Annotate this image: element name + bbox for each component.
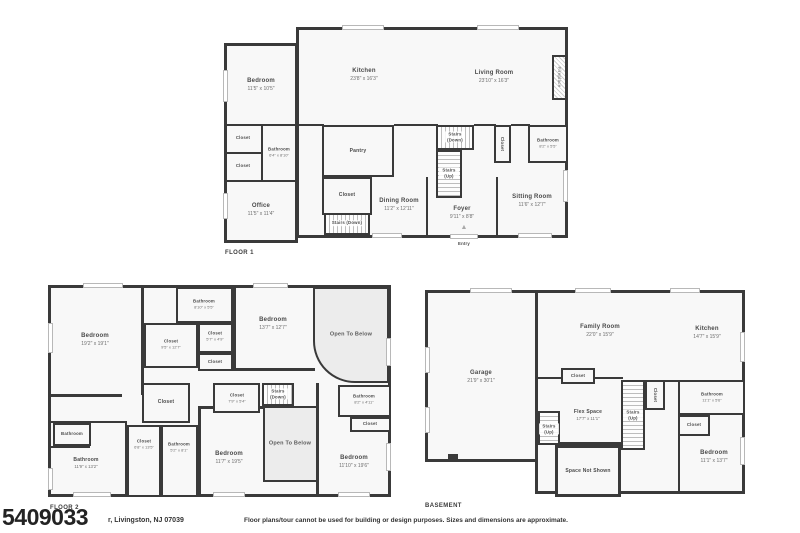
- room-label-entry: Entry: [458, 241, 470, 247]
- disclaimer-text: Floor plans/tour cannot be used for buil…: [244, 517, 568, 524]
- window: [425, 347, 430, 373]
- window: [386, 443, 391, 471]
- room-label-closet: Closet: [687, 422, 701, 428]
- room-name: Pantry: [350, 148, 367, 155]
- room-name: Stairs (Down): [269, 388, 287, 399]
- room-label-space-not-shown: Space Not Shown: [565, 468, 610, 475]
- wall: [474, 124, 496, 126]
- room-dims: 7'9" x 5'4": [228, 398, 246, 403]
- window: [223, 193, 228, 219]
- room-name: Living Room: [475, 70, 514, 78]
- room-name: Bedroom: [259, 317, 287, 325]
- room-label-closet: Closet: [339, 192, 355, 199]
- window: [563, 170, 568, 202]
- wall: [538, 377, 563, 379]
- wall: [198, 406, 201, 497]
- room-label-closet: Closet 9'5" x 12'7": [161, 339, 181, 350]
- room-name: Closet: [206, 331, 224, 337]
- room-label-bathroom: Bathroom: [61, 431, 83, 437]
- room-name: Closet: [499, 137, 505, 151]
- room-name: Stairs (Up): [440, 167, 458, 178]
- room-label-bathroom: Bathroom 6'4" x 8'10": [268, 147, 290, 158]
- room-name: Bathroom: [537, 138, 559, 144]
- room-name: Bedroom: [700, 450, 728, 458]
- room-dims: 17'7" x 11'1": [574, 415, 602, 421]
- room-name: Closet: [687, 422, 701, 428]
- room-dims: 8'10" x 5'5": [193, 304, 215, 309]
- entry-opening: [450, 234, 478, 239]
- window: [48, 468, 53, 490]
- room-label-closet: Closet: [236, 135, 250, 141]
- room-dims: 11'9" x 13'2": [73, 463, 98, 469]
- window: [386, 338, 391, 366]
- room-dims: 23'10" x 16'3": [475, 78, 514, 85]
- room-label-closet: Closet 5'7" x 4'9": [206, 331, 224, 342]
- room-label-kitchen: Kitchen 14'7" x 15'9": [693, 326, 720, 340]
- window: [477, 25, 519, 30]
- room-name: Closet: [339, 192, 355, 199]
- room-name: Kitchen: [693, 326, 720, 334]
- room-label-closet: Closet 7'9" x 5'4": [228, 393, 246, 404]
- wall: [50, 394, 122, 397]
- room-dims: 11'5" x 10'5": [247, 86, 275, 93]
- room-name: Office: [248, 203, 275, 211]
- room-label-garage: Garage 21'9" x 30'1": [467, 370, 494, 384]
- wall: [226, 180, 296, 182]
- room-name: Family Room: [580, 324, 620, 332]
- room-name: Open To Below: [269, 440, 311, 447]
- room-name: Foyer: [450, 206, 474, 214]
- room-dims: 14'7" x 15'9": [693, 334, 720, 341]
- room-label-stairs-up: Stairs (Up): [623, 409, 643, 420]
- window: [48, 323, 53, 353]
- room-name: Bathroom: [61, 431, 83, 437]
- room-label-fireplace: Fireplace: [556, 67, 562, 88]
- wall: [261, 126, 263, 180]
- room-name: Bedroom: [339, 455, 369, 463]
- room-label-kitchen: Kitchen 23'8" x 16'3": [350, 68, 377, 82]
- window: [213, 492, 245, 497]
- room-label-office: Office 11'5" x 11'4": [248, 203, 275, 217]
- room-name: Closet: [134, 439, 154, 445]
- room-dims: 13'7" x 12'7": [259, 325, 287, 332]
- room-dims: 11'7" x 19'5": [215, 459, 243, 466]
- room-name: Space Not Shown: [565, 468, 610, 475]
- room-label-foyer: Foyer 9'11" x 8'8": [450, 206, 474, 220]
- room-dims: 9'5" x 12'7": [161, 344, 181, 349]
- room-label-open-to-below: Open To Below: [330, 331, 372, 338]
- room-label-family-room: Family Room 22'0" x 15'9": [580, 324, 620, 338]
- room-name: Open To Below: [330, 331, 372, 338]
- room-label-bathroom: Bathroom 11'9" x 13'2": [73, 457, 98, 469]
- window: [425, 407, 430, 433]
- wall: [298, 124, 324, 126]
- room-label-stairs-down: Stairs (Down): [445, 131, 465, 142]
- room-name: Closet: [571, 373, 585, 379]
- window: [73, 492, 111, 497]
- floor1-plan: Bedroom 11'5" x 10'5" Kitchen 23'8" x 16…: [222, 25, 574, 260]
- room-name: Flex Space: [574, 409, 602, 416]
- room-label-bedroom: Bedroom 11'5" x 10'5": [247, 78, 275, 92]
- room-name: Bathroom: [73, 457, 98, 464]
- room-label-sitting-room: Sitting Room 11'6" x 12'7": [512, 194, 552, 208]
- room-label-living-room: Living Room 23'10" x 16'3": [475, 70, 514, 84]
- room-name: Kitchen: [350, 68, 377, 76]
- room-label-bedroom: Bedroom 13'7" x 12'7": [259, 317, 287, 331]
- room-name: Fireplace: [556, 67, 562, 88]
- room-name: Bedroom: [215, 451, 243, 459]
- room-label-bedroom: Bedroom 11'10" x 19'6": [339, 455, 369, 469]
- room-name: Bathroom: [168, 442, 190, 448]
- wall: [50, 446, 90, 448]
- room-label-bathroom: Bathroom 8'10" x 5'5": [193, 299, 215, 310]
- room-label-closet: Closet: [208, 359, 222, 365]
- room-label-dining-room: Dining Room 11'2" x 12'11": [379, 198, 419, 212]
- window: [470, 288, 512, 293]
- room-label-bathroom: Bathroom 8'2" x 5'5": [537, 138, 559, 149]
- room-name: Closet: [363, 421, 377, 427]
- mls-number-watermark: 5409033: [2, 504, 88, 531]
- room-dims: 5'7" x 4'9": [206, 336, 224, 341]
- room-label-bedroom: Bedroom 11'1" x 13'7": [700, 450, 728, 464]
- room-label-bathroom: Bathroom 5'2" x 8'1": [168, 442, 190, 453]
- room-dims: 11'5" x 11'4": [248, 211, 275, 218]
- room-label-open-to-below: Open To Below: [269, 440, 311, 447]
- window: [740, 332, 745, 362]
- window: [338, 492, 370, 497]
- room-label-closet: Closet: [236, 163, 250, 169]
- room-name: Stairs (Down): [332, 220, 362, 226]
- wall: [426, 177, 428, 236]
- room-dims: 9'11" x 8'8": [450, 214, 474, 221]
- window: [83, 283, 123, 288]
- room-name: Sitting Room: [512, 194, 552, 202]
- room-dims: 6'4" x 8'10": [268, 152, 290, 157]
- room-label-pantry: Pantry: [350, 148, 367, 155]
- room-name: Bedroom: [81, 333, 109, 341]
- room-label-closet: Closet: [499, 137, 505, 151]
- room-label-closet: Closet: [158, 399, 174, 406]
- room-dims: 8'2" x 5'5": [537, 143, 559, 148]
- floorplan-page: Bedroom 11'5" x 10'5" Kitchen 23'8" x 16…: [0, 0, 800, 533]
- room-name: Bathroom: [268, 147, 290, 153]
- room-dims: 11'10" x 19'6": [339, 463, 369, 470]
- room-dims: 23'8" x 16'3": [350, 76, 377, 83]
- room-dims: 19'2" x 19'1": [81, 341, 109, 348]
- floor2-plan: Bedroom 19'2" x 19'1" Bathroom 8'10" x 5…: [48, 278, 400, 516]
- window: [575, 288, 611, 293]
- room-name: Garage: [467, 370, 494, 378]
- room-name: Closet: [228, 393, 246, 399]
- room-name: Entry: [458, 241, 470, 247]
- room-label-bathroom: Bathroom 8'2" x 4'11": [353, 394, 375, 405]
- basement-plan: Garage 21'9" x 30'1" Family Room 22'0" x…: [425, 287, 755, 517]
- room-name: Bathroom: [701, 392, 723, 398]
- address-text: r, Livingston, NJ 07039: [108, 517, 184, 524]
- room-label-bedroom: Bedroom 11'7" x 19'5": [215, 451, 243, 465]
- floor1-tag: FLOOR 1: [225, 250, 254, 256]
- room-label-stairs-down: Stairs (Down): [268, 388, 288, 399]
- room-name: Stairs (Up): [540, 423, 558, 434]
- basement-tag: BASEMENT: [425, 503, 462, 509]
- room-label-closet: Closet: [363, 421, 377, 427]
- room-dims: 11'6" x 12'7": [512, 202, 552, 209]
- room-name: Dining Room: [379, 198, 419, 206]
- wall: [226, 152, 262, 154]
- wall: [316, 383, 319, 497]
- room-name: Stairs (Down): [446, 131, 464, 142]
- window: [518, 233, 552, 238]
- entry-arrow-icon: ▲: [461, 224, 468, 231]
- room-name: Closet: [236, 135, 250, 141]
- room-dims: 11'1" x 5'6": [701, 397, 723, 402]
- room-label-stairs-up: Stairs (Up): [539, 423, 559, 434]
- room-name: Bedroom: [247, 78, 275, 86]
- room-name: Closet: [652, 388, 658, 402]
- garage-door-marker: [448, 454, 458, 461]
- room-dims: 11'2" x 12'11": [379, 206, 419, 213]
- room-name: Closet: [158, 399, 174, 406]
- window: [223, 70, 228, 102]
- room-label-closet: Closet: [571, 373, 585, 379]
- window: [372, 233, 402, 238]
- room-dims: 5'2" x 8'1": [168, 447, 190, 452]
- room-dims: 22'0" x 15'9": [580, 332, 620, 339]
- closet-room: [127, 425, 161, 497]
- room-label-closet: Closet: [652, 388, 658, 402]
- room-name: Bathroom: [353, 394, 375, 400]
- room-dims: 11'1" x 13'7": [700, 458, 728, 465]
- wall: [496, 177, 498, 236]
- room-label-closet: Closet 6'8" x 13'5": [134, 439, 154, 450]
- room-name: Closet: [161, 339, 181, 345]
- room-label-flex-space: Flex Space 17'7" x 11'1": [574, 409, 602, 421]
- room-label-stairs-down: Stairs (Down): [331, 220, 363, 226]
- wall: [233, 368, 315, 371]
- room-dims: 21'9" x 30'1": [467, 378, 494, 385]
- room-dims: 8'2" x 4'11": [353, 399, 375, 404]
- room-name: Stairs (Up): [624, 409, 642, 420]
- wall: [233, 287, 236, 370]
- room-name: Closet: [236, 163, 250, 169]
- wall: [394, 124, 438, 126]
- room-label-stairs-up: Stairs (Up): [439, 167, 459, 178]
- window: [670, 288, 700, 293]
- bathroom-room: [161, 425, 198, 497]
- window: [342, 25, 384, 30]
- room-dims: 6'8" x 13'5": [134, 444, 154, 449]
- window: [253, 283, 288, 288]
- room-name: Closet: [208, 359, 222, 365]
- room-name: Bathroom: [193, 299, 215, 305]
- room-label-bathroom: Bathroom 11'1" x 5'6": [701, 392, 723, 403]
- window: [740, 437, 745, 465]
- wall: [593, 377, 623, 379]
- room-label-bedroom: Bedroom 19'2" x 19'1": [81, 333, 109, 347]
